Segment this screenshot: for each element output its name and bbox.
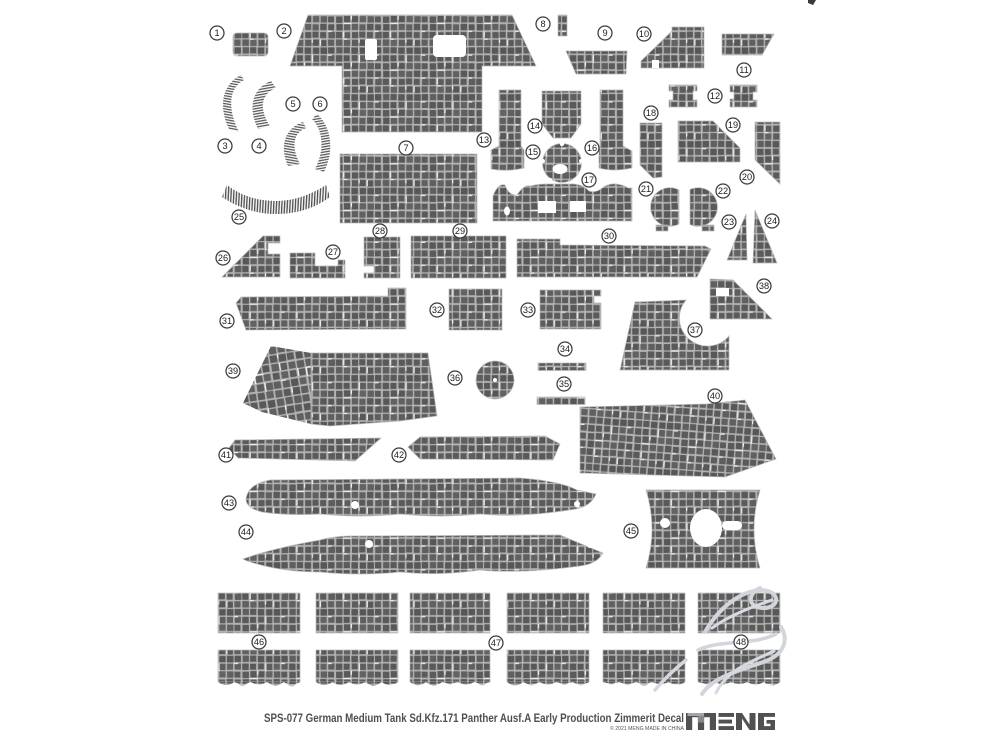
svg-text:31: 31 — [222, 316, 232, 326]
svg-text:1: 1 — [214, 28, 219, 38]
svg-text:29: 29 — [455, 226, 465, 236]
svg-text:23: 23 — [724, 217, 734, 227]
svg-text:28: 28 — [375, 226, 385, 236]
svg-text:6: 6 — [317, 99, 322, 109]
svg-text:18: 18 — [646, 108, 656, 118]
svg-text:21: 21 — [641, 184, 651, 194]
svg-text:9: 9 — [602, 28, 607, 38]
svg-text:42: 42 — [394, 450, 404, 460]
svg-text:20: 20 — [742, 172, 752, 182]
svg-text:37: 37 — [690, 325, 700, 335]
svg-text:2: 2 — [281, 26, 286, 36]
svg-text:43: 43 — [224, 498, 234, 508]
svg-text:36: 36 — [450, 373, 460, 383]
svg-text:27: 27 — [328, 247, 338, 257]
svg-text:38: 38 — [759, 281, 769, 291]
svg-text:19: 19 — [728, 120, 738, 130]
svg-text:SPS-077 German Medium Tank Sd.: SPS-077 German Medium Tank Sd.Kfz.171 Pa… — [264, 713, 684, 725]
svg-text:5: 5 — [290, 99, 295, 109]
svg-text:14: 14 — [530, 121, 540, 131]
svg-text:45: 45 — [626, 526, 636, 536]
svg-text:44: 44 — [241, 527, 251, 537]
svg-text:15: 15 — [528, 147, 538, 157]
svg-text:8: 8 — [540, 19, 545, 29]
svg-text:17: 17 — [584, 175, 594, 185]
svg-text:11: 11 — [739, 65, 749, 75]
svg-text:35: 35 — [559, 379, 569, 389]
svg-text:48: 48 — [736, 637, 746, 647]
svg-text:24: 24 — [767, 216, 777, 226]
svg-text:© 2021 MENG MADE IN CHINA: © 2021 MENG MADE IN CHINA — [610, 725, 685, 732]
svg-text:4: 4 — [256, 141, 261, 151]
svg-text:33: 33 — [523, 305, 533, 315]
svg-text:16: 16 — [587, 143, 597, 153]
svg-text:25: 25 — [234, 212, 244, 222]
svg-text:41: 41 — [221, 450, 231, 460]
svg-text:39: 39 — [228, 366, 238, 376]
svg-text:22: 22 — [718, 186, 728, 196]
svg-text:3: 3 — [222, 141, 227, 151]
svg-text:40: 40 — [710, 391, 720, 401]
svg-text:32: 32 — [432, 305, 442, 315]
svg-text:13: 13 — [479, 135, 489, 145]
svg-text:34: 34 — [560, 344, 570, 354]
svg-text:46: 46 — [254, 637, 264, 647]
svg-text:30: 30 — [604, 231, 614, 241]
svg-text:12: 12 — [710, 91, 720, 101]
svg-text:10: 10 — [639, 29, 649, 39]
svg-text:7: 7 — [403, 143, 408, 153]
svg-text:26: 26 — [218, 253, 228, 263]
svg-text:47: 47 — [491, 638, 501, 648]
